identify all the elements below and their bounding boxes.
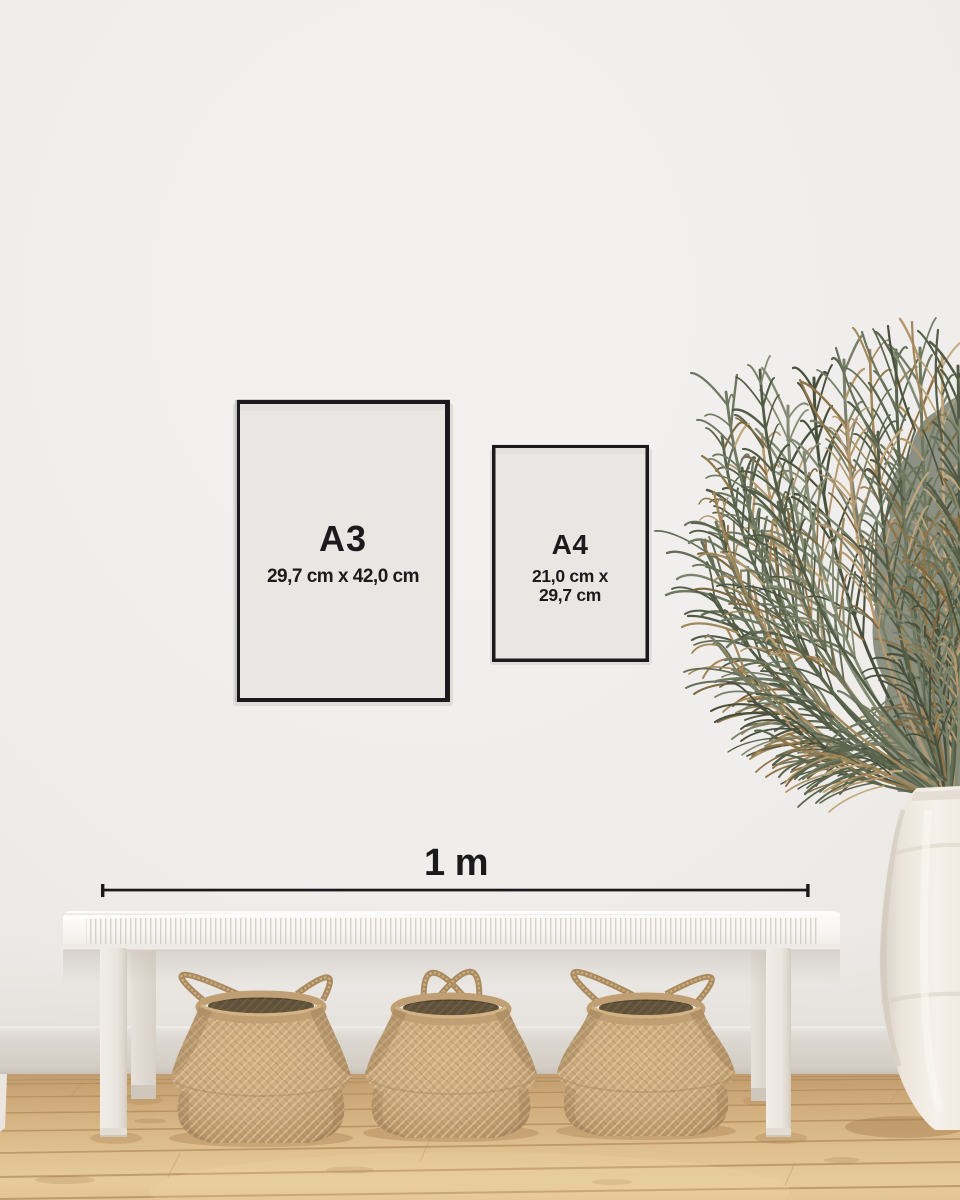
svg-text:A3: A3	[319, 518, 367, 559]
svg-text:1 m: 1 m	[424, 842, 488, 884]
svg-text:29,7 cm x 42,0 cm: 29,7 cm x 42,0 cm	[267, 566, 419, 587]
svg-text:29,7 cm: 29,7 cm	[539, 585, 601, 605]
svg-text:A4: A4	[552, 529, 589, 560]
svg-text:21,0 cm x: 21,0 cm x	[532, 566, 609, 586]
